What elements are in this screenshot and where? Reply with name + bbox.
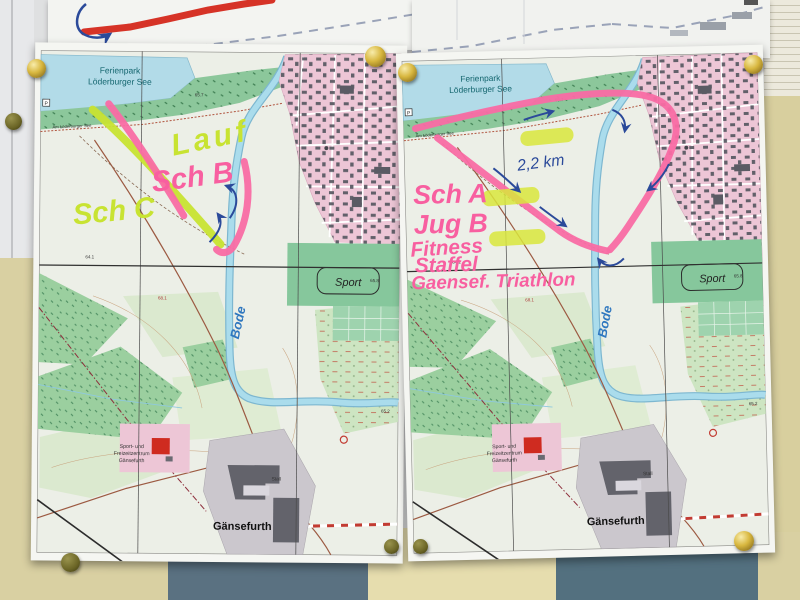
pushpin: [5, 113, 22, 130]
pushpin: [398, 63, 417, 82]
pushpin: [734, 531, 754, 551]
red-route-line: [84, 0, 272, 32]
pushpin: [27, 59, 46, 78]
dashed-line: [412, 24, 612, 52]
pushpin: [384, 539, 399, 554]
annotation-sch-a: Sch A: [413, 178, 488, 210]
pushpin: [61, 553, 80, 572]
pushpin: [744, 55, 763, 74]
annotation-event: Gaensef. Triathlon: [411, 268, 576, 293]
pushpin: [413, 539, 428, 554]
building-plan-block: [700, 22, 726, 30]
dashed-line: [198, 12, 428, 46]
photo-of-maps-on-wall: Am Löderburger See: [0, 0, 800, 600]
left-map-sheet: Lauf Sch B Sch C: [31, 42, 408, 563]
pushpin: [365, 46, 386, 67]
right-map-sheet: 2,2 km Sch A Jug B Fitness Staffel Gaens…: [396, 45, 775, 562]
